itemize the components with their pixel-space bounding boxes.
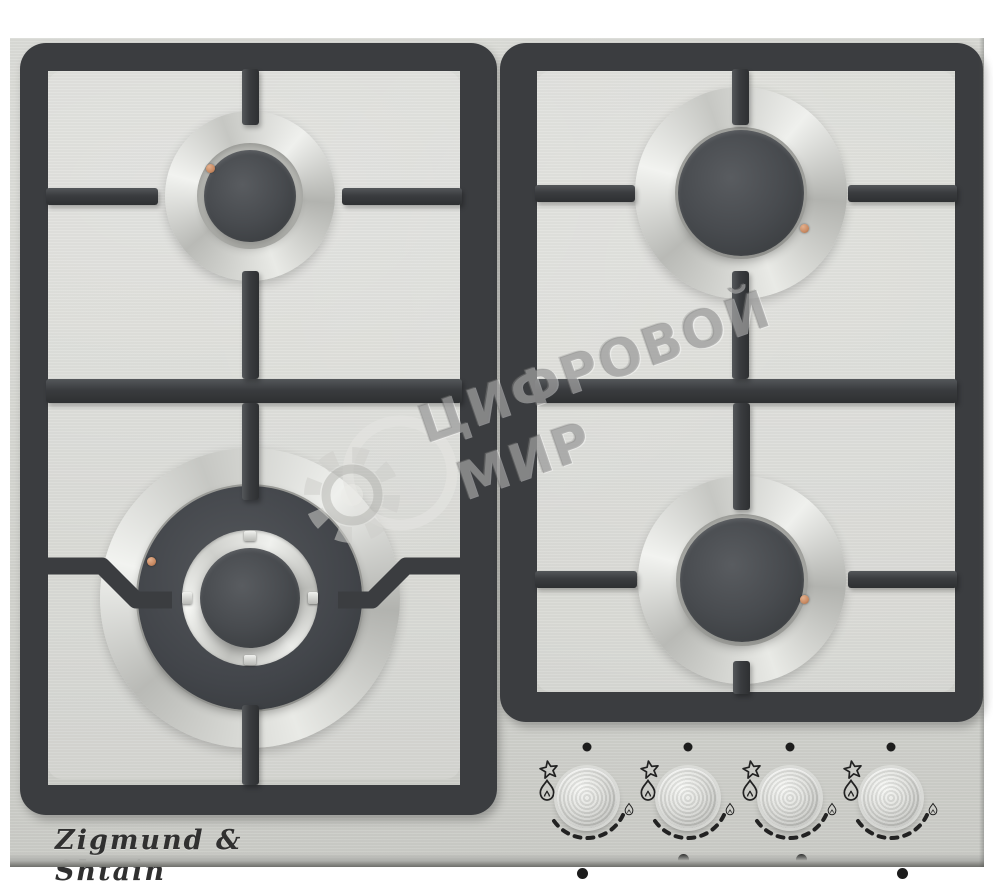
gas-knob-front-left[interactable] [557,768,617,828]
off-position-dot [887,743,896,752]
grate-finger [242,271,259,379]
grate-finger [535,185,635,202]
burner-indicator-dot [881,868,892,879]
min-flame-icon [625,804,633,815]
max-flame-icon [540,781,553,800]
max-flame-icon [641,781,654,800]
burner-indicator-dot [796,868,807,879]
max-flame-icon [743,781,756,800]
min-flame-icon [726,804,734,815]
burner-indicator-dot [577,868,588,879]
ignition-spark-icon [743,761,760,778]
grate-finger [242,705,259,785]
burner-indicator-dot [694,868,705,879]
off-position-dot [684,743,693,752]
grate-finger [242,69,259,125]
ignition-spark-icon [540,761,557,778]
max-flame-icon [844,781,857,800]
gas-knob-rear-left[interactable] [658,768,718,828]
hob-bottom-edge-shadow [10,853,984,867]
grate-bar-left-middle [46,379,462,403]
gas-knob-rear-right[interactable] [760,768,820,828]
grate-finger [733,661,750,694]
hob-right-edge-shadow [979,38,984,867]
burner-indicator-dot [593,868,604,879]
grate-finger [848,185,957,202]
grate-finger [535,571,637,588]
ignition-spark-icon [844,761,861,778]
off-position-dot [786,743,795,752]
hob-body: Zigmund & Shtain ЦИФРОВОЙ МИР [10,13,984,867]
min-flame-icon [929,804,937,815]
off-position-dot [583,743,592,752]
burner-indicator-dot [897,868,908,879]
grate-finger [342,188,462,205]
product-photo-gas-hob: Zigmund & Shtain ЦИФРОВОЙ МИР [0,0,993,882]
min-flame-icon [828,804,836,815]
grate-finger [242,403,259,500]
burner-indicator-dot [780,868,791,879]
grate-finger [733,403,750,510]
ignition-spark-icon [641,761,658,778]
grate-finger [732,69,749,125]
grate-finger [848,571,957,588]
grate-finger [46,188,158,205]
hob-front-edge [10,13,984,38]
gas-knob-front-right[interactable] [861,768,921,828]
burner-indicator-dot [678,868,689,879]
